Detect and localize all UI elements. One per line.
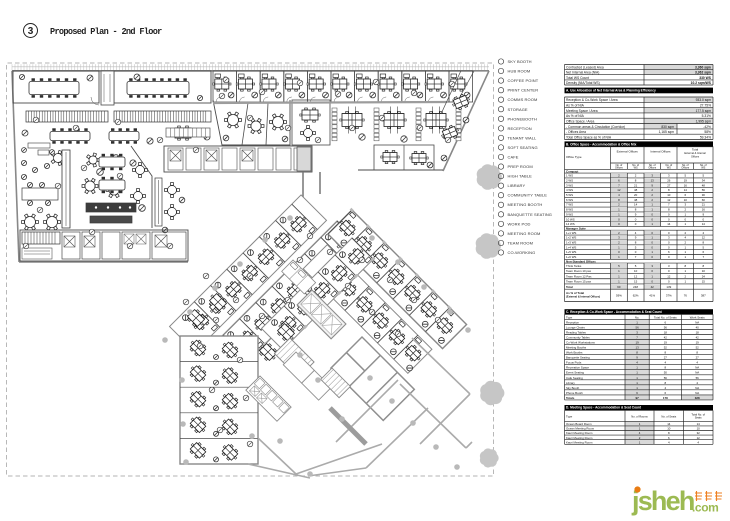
svg-text:10: 10 xyxy=(684,198,688,202)
svg-text:Office Space / Area: Office Space / Area xyxy=(566,119,595,123)
svg-text:10: 10 xyxy=(667,427,671,431)
svg-text:Reading Tables: Reading Tables xyxy=(566,331,586,335)
svg-text:1,995 sqm: 1,995 sqm xyxy=(696,119,712,123)
svg-text:5 WS: 5 WS xyxy=(566,193,573,197)
svg-text:56: 56 xyxy=(664,326,668,330)
svg-text:Kauri Meeting Room: Kauri Meeting Room xyxy=(566,436,593,440)
svg-text:62%: 62% xyxy=(633,294,639,298)
svg-text:97: 97 xyxy=(635,396,639,400)
svg-text:5: 5 xyxy=(702,174,704,178)
svg-text:58%: 58% xyxy=(704,130,711,134)
svg-text:8 WS: 8 WS xyxy=(566,208,573,212)
svg-text:26: 26 xyxy=(667,179,671,183)
svg-text:6: 6 xyxy=(702,250,704,254)
svg-text:Banquette Seating: Banquette Seating xyxy=(566,356,590,360)
svg-text:As % of Total: As % of Total xyxy=(566,291,584,295)
svg-text:15: 15 xyxy=(634,280,638,284)
svg-text:C. Reception & Co-Work Space -: C. Reception & Co-Work Space - Accommoda… xyxy=(566,310,663,314)
svg-text:Reception & Co-Work Space / Ar: Reception & Co-Work Space / Area xyxy=(566,98,618,102)
svg-text:Offices: Offices xyxy=(681,167,689,170)
svg-text:9 WS: 9 WS xyxy=(566,212,573,216)
svg-text:Totals: Totals xyxy=(566,396,575,400)
svg-text:27: 27 xyxy=(664,356,668,360)
svg-text:1+4 WS: 1+4 WS xyxy=(566,245,576,249)
svg-text:1: 1 xyxy=(684,280,686,284)
svg-text:WS: WS xyxy=(701,167,705,170)
svg-text:A. Use Allocation of Net Inter: A. Use Allocation of Net Internal Area &… xyxy=(566,89,656,93)
svg-text:56: 56 xyxy=(635,326,639,330)
svg-text:48: 48 xyxy=(634,198,638,202)
svg-text:248: 248 xyxy=(633,285,638,289)
svg-text:Work Booths: Work Booths xyxy=(566,351,583,355)
svg-text:5: 5 xyxy=(635,245,637,249)
svg-text:27.75%: 27.75% xyxy=(700,104,711,108)
svg-text:Density (NIA/Total WS): Density (NIA/Total WS) xyxy=(566,81,600,85)
svg-text:52: 52 xyxy=(664,346,668,350)
svg-text:12: 12 xyxy=(702,236,706,240)
svg-text:19: 19 xyxy=(684,179,688,183)
svg-text:139: 139 xyxy=(666,285,671,289)
svg-text:5.31%: 5.31% xyxy=(702,114,711,118)
svg-text:328: 328 xyxy=(695,396,700,400)
svg-text:Team Room 12 Pax: Team Room 12 Pax xyxy=(566,274,592,278)
svg-text:- Common areas & Circulation (: - Common areas & Circulation (Corridor) xyxy=(566,125,625,129)
svg-text:830 sqm: 830 sqm xyxy=(661,125,674,129)
svg-text:48: 48 xyxy=(702,183,706,187)
svg-text:NA: NA xyxy=(695,320,699,324)
svg-text:2: 2 xyxy=(684,274,686,278)
svg-text:1+5 WS: 1+5 WS xyxy=(566,250,576,254)
svg-text:12: 12 xyxy=(617,188,621,192)
svg-text:0: 0 xyxy=(668,241,670,245)
svg-text:3,360 sqm: 3,360 sqm xyxy=(695,66,711,70)
svg-text:21: 21 xyxy=(702,203,706,207)
svg-text:13: 13 xyxy=(651,179,655,183)
svg-text:Total WS Count: Total WS Count xyxy=(566,76,589,80)
svg-text:14: 14 xyxy=(697,422,701,426)
svg-text:2: 2 xyxy=(684,208,686,212)
svg-text:7 WS: 7 WS xyxy=(566,203,573,207)
svg-text:9: 9 xyxy=(635,236,637,240)
svg-text:8: 8 xyxy=(696,351,698,355)
svg-text:Meeting Space / Area: Meeting Space / Area xyxy=(566,109,598,113)
svg-text:34: 34 xyxy=(702,179,706,183)
svg-text:4: 4 xyxy=(684,236,686,240)
svg-text:8: 8 xyxy=(664,351,666,355)
svg-text:18: 18 xyxy=(696,331,700,335)
svg-text:1: 1 xyxy=(684,255,686,259)
svg-text:5: 5 xyxy=(684,174,686,178)
svg-text:No. of Seats: No. of Seats xyxy=(661,414,676,418)
svg-text:14: 14 xyxy=(702,222,706,226)
svg-text:8: 8 xyxy=(668,188,670,192)
svg-text:387: 387 xyxy=(701,294,706,298)
svg-text:8: 8 xyxy=(664,366,666,370)
svg-text:0: 0 xyxy=(668,255,670,259)
svg-text:1: 1 xyxy=(684,212,686,216)
svg-text:16: 16 xyxy=(702,208,706,212)
svg-text:2: 2 xyxy=(684,231,686,235)
svg-text:7: 7 xyxy=(668,203,670,207)
svg-text:0: 0 xyxy=(684,217,686,221)
svg-text:21: 21 xyxy=(634,183,638,187)
svg-text:3: 3 xyxy=(668,174,670,178)
svg-text:14: 14 xyxy=(667,222,671,226)
svg-text:Total: Total xyxy=(692,148,699,152)
svg-text:Offices: Offices xyxy=(691,155,700,159)
svg-text:Reception: Reception xyxy=(566,320,579,324)
svg-text:1 WS: 1 WS xyxy=(566,174,573,178)
svg-text:59.34%: 59.34% xyxy=(700,135,711,139)
svg-text:Kauri Meeting Room: Kauri Meeting Room xyxy=(566,431,593,435)
svg-text:Seats: Seats xyxy=(695,416,703,420)
svg-text:3: 3 xyxy=(684,203,686,207)
svg-text:52: 52 xyxy=(696,346,700,350)
svg-text:15: 15 xyxy=(702,280,706,284)
svg-text:60: 60 xyxy=(702,198,706,202)
svg-text:Net Internal Area (NIA): Net Internal Area (NIA) xyxy=(566,71,599,75)
svg-text:Team Room 10 pax: Team Room 10 pax xyxy=(566,269,592,273)
svg-text:0: 0 xyxy=(668,269,670,273)
svg-text:8: 8 xyxy=(702,241,704,245)
svg-text:6: 6 xyxy=(684,193,686,197)
svg-text:Total: Total xyxy=(566,285,573,289)
svg-text:18: 18 xyxy=(664,331,668,335)
svg-text:19: 19 xyxy=(696,341,700,345)
svg-text:8: 8 xyxy=(668,431,670,435)
svg-text:Event Seating: Event Seating xyxy=(566,371,584,375)
svg-text:6: 6 xyxy=(664,391,666,395)
svg-text:37%: 37% xyxy=(666,294,672,298)
svg-text:1+2 WS: 1+2 WS xyxy=(566,236,576,240)
svg-text:NA: NA xyxy=(695,366,699,370)
svg-text:No. of Rooms: No. of Rooms xyxy=(631,414,648,418)
svg-text:4: 4 xyxy=(697,440,699,444)
svg-text:8: 8 xyxy=(668,208,670,212)
svg-text:Office Type: Office Type xyxy=(566,155,582,159)
svg-text:41%: 41% xyxy=(649,294,655,298)
svg-text:1,165 sqm: 1,165 sqm xyxy=(659,130,675,134)
svg-text:1: 1 xyxy=(684,269,686,273)
svg-text:Cafe Seating: Cafe Seating xyxy=(566,376,583,380)
svg-text:3,362 sqm: 3,362 sqm xyxy=(695,71,711,75)
svg-text:8: 8 xyxy=(635,179,637,183)
svg-text:12: 12 xyxy=(667,198,671,202)
svg-text:8: 8 xyxy=(635,241,637,245)
svg-text:- Offices Area: - Offices Area xyxy=(566,130,586,134)
svg-text:178: 178 xyxy=(663,396,668,400)
svg-text:Total No. of Seats: Total No. of Seats xyxy=(654,315,677,319)
svg-text:5: 5 xyxy=(702,245,704,249)
svg-text:12: 12 xyxy=(634,274,638,278)
svg-text:4: 4 xyxy=(668,440,670,444)
svg-text:WS: WS xyxy=(634,167,638,170)
svg-text:0: 0 xyxy=(635,222,637,226)
svg-text:48: 48 xyxy=(634,188,638,192)
svg-text:As % of NIA: As % of NIA xyxy=(566,104,585,108)
svg-text:Total Office Space as % of NIA: Total Office Space as % of NIA xyxy=(566,135,612,139)
svg-text:NA: NA xyxy=(695,386,699,390)
svg-text:4 WS: 4 WS xyxy=(566,188,573,192)
svg-text:External Offices: External Offices xyxy=(617,150,639,154)
svg-text:177.5 sqm: 177.5 sqm xyxy=(696,109,712,113)
svg-text:42: 42 xyxy=(664,336,668,340)
svg-text:7: 7 xyxy=(702,255,704,259)
svg-text:Work Seats: Work Seats xyxy=(690,315,705,319)
svg-text:76: 76 xyxy=(684,294,688,298)
svg-text:D. Meeting Space - Accommodati: D. Meeting Space - Accommodation & Seat … xyxy=(566,406,642,410)
svg-text:4: 4 xyxy=(696,381,698,385)
svg-text:Internal Offices: Internal Offices xyxy=(650,150,671,154)
svg-text:4: 4 xyxy=(702,231,704,235)
svg-text:0: 0 xyxy=(668,212,670,216)
svg-text:2 WS: 2 WS xyxy=(566,179,573,183)
svg-text:3 WS: 3 WS xyxy=(566,183,573,187)
svg-text:10: 10 xyxy=(697,427,701,431)
svg-text:0: 0 xyxy=(668,231,670,235)
svg-text:7: 7 xyxy=(635,255,637,259)
svg-text:16: 16 xyxy=(684,183,688,187)
svg-text:0: 0 xyxy=(702,217,704,221)
svg-text:9: 9 xyxy=(635,212,637,216)
svg-text:10: 10 xyxy=(634,269,638,273)
svg-text:330 WS: 330 WS xyxy=(699,76,712,80)
svg-text:0: 0 xyxy=(668,280,670,284)
svg-text:-42%: -42% xyxy=(703,125,711,129)
svg-text:Lounge Chairs: Lounge Chairs xyxy=(566,326,585,330)
svg-text:0: 0 xyxy=(668,217,670,221)
svg-text:933.0 sqm: 933.0 sqm xyxy=(696,98,712,102)
svg-text:External & Internal: External & Internal xyxy=(684,151,706,155)
svg-text:50: 50 xyxy=(664,371,668,375)
svg-text:30: 30 xyxy=(702,193,706,197)
svg-text:Meeting Booths: Meeting Booths xyxy=(566,346,587,350)
svg-text:1: 1 xyxy=(684,250,686,254)
svg-text:12: 12 xyxy=(697,436,701,440)
svg-text:.com: .com xyxy=(692,501,718,515)
svg-text:B. Office Space - Accommodatio: B. Office Space - Accommodation & Office… xyxy=(566,143,637,147)
svg-text:42: 42 xyxy=(696,336,700,340)
svg-text:4: 4 xyxy=(664,361,666,365)
svg-text:Community Tables: Community Tables xyxy=(566,336,590,340)
svg-text:6 WS: 6 WS xyxy=(566,198,573,202)
svg-text:Phone Booth: Phone Booth xyxy=(566,391,583,395)
svg-text:Focus Pods: Focus Pods xyxy=(566,361,582,365)
svg-text:19: 19 xyxy=(635,341,639,345)
svg-text:27: 27 xyxy=(667,183,671,187)
svg-text:27: 27 xyxy=(696,356,700,360)
svg-text:19: 19 xyxy=(664,341,668,345)
svg-text:10 WS: 10 WS xyxy=(566,217,575,221)
svg-text:Library: Library xyxy=(566,381,575,385)
svg-text:13: 13 xyxy=(635,346,639,350)
svg-text:Offices: Offices xyxy=(615,167,623,170)
svg-text:6: 6 xyxy=(664,320,666,324)
svg-text:2: 2 xyxy=(635,174,637,178)
svg-text:Think Tanks: Think Tanks xyxy=(566,264,582,268)
svg-text:3: 3 xyxy=(668,264,670,268)
svg-text:14 WS: 14 WS xyxy=(566,222,575,226)
svg-text:4: 4 xyxy=(696,361,698,365)
svg-text:1: 1 xyxy=(684,222,686,226)
svg-text:3: 3 xyxy=(668,236,670,240)
svg-text:Contracted (Leased) Area: Contracted (Leased) Area xyxy=(566,66,604,70)
svg-text:8: 8 xyxy=(684,264,686,268)
svg-text:(External & Internal Offices): (External & Internal Offices) xyxy=(566,295,600,299)
svg-text:1+3 WS: 1+3 WS xyxy=(566,241,576,245)
svg-text:9: 9 xyxy=(702,212,704,216)
svg-text:60: 60 xyxy=(617,285,621,289)
svg-text:10: 10 xyxy=(702,269,706,273)
svg-text:Ocean Board Room: Ocean Board Room xyxy=(566,422,592,426)
svg-text:5: 5 xyxy=(635,264,637,268)
svg-text:0: 0 xyxy=(635,217,637,221)
svg-text:6: 6 xyxy=(668,250,670,254)
svg-text:0: 0 xyxy=(668,245,670,249)
svg-text:8: 8 xyxy=(702,264,704,268)
svg-text:24: 24 xyxy=(702,274,706,278)
svg-text:14: 14 xyxy=(684,188,688,192)
svg-text:14: 14 xyxy=(667,422,671,426)
svg-text:6: 6 xyxy=(668,436,670,440)
svg-text:NA: NA xyxy=(695,391,699,395)
svg-text:59%: 59% xyxy=(616,294,622,298)
svg-text:1: 1 xyxy=(684,245,686,249)
svg-text:Recreation Space: Recreation Space xyxy=(566,366,589,370)
svg-text:0: 0 xyxy=(635,250,637,254)
svg-text:10: 10 xyxy=(667,193,671,197)
svg-text:1+6 WS: 1+6 WS xyxy=(566,255,576,259)
svg-text:Type: Type xyxy=(566,414,573,418)
svg-text:10.2 sqm/WS: 10.2 sqm/WS xyxy=(691,81,712,85)
svg-text:8: 8 xyxy=(635,208,637,212)
svg-text:WS: WS xyxy=(667,167,671,170)
svg-text:4: 4 xyxy=(635,231,637,235)
svg-text:NA: NA xyxy=(695,371,699,375)
svg-text:Co-Work Workstations: Co-Work Workstations xyxy=(566,341,595,345)
svg-text:As % of NIA: As % of NIA xyxy=(566,114,585,118)
svg-text:56: 56 xyxy=(702,188,706,192)
svg-text:Team Room 15 pax: Team Room 15 pax xyxy=(566,280,592,284)
svg-text:14: 14 xyxy=(634,203,638,207)
svg-text:Kauri Meeting Room: Kauri Meeting Room xyxy=(566,440,593,444)
svg-text:4: 4 xyxy=(664,386,666,390)
svg-text:Non-Standard Offices: Non-Standard Offices xyxy=(566,259,596,263)
svg-text:1+1 WS: 1+1 WS xyxy=(566,231,576,235)
svg-text:42: 42 xyxy=(651,285,655,289)
svg-text:40: 40 xyxy=(696,326,700,330)
svg-text:32: 32 xyxy=(697,431,701,435)
svg-text:8: 8 xyxy=(664,381,666,385)
svg-text:Type: Type xyxy=(566,315,573,319)
svg-text:No.: No. xyxy=(635,315,640,319)
svg-text:12: 12 xyxy=(667,274,671,278)
svg-text:56: 56 xyxy=(664,376,668,380)
svg-text:56: 56 xyxy=(696,376,700,380)
svg-text:20: 20 xyxy=(634,193,638,197)
svg-text:2: 2 xyxy=(684,241,686,245)
svg-text:Ocean Meeting Room: Ocean Meeting Room xyxy=(566,427,595,431)
svg-text:Offices: Offices xyxy=(648,167,656,170)
svg-text:Sky Booth: Sky Booth xyxy=(566,386,580,390)
